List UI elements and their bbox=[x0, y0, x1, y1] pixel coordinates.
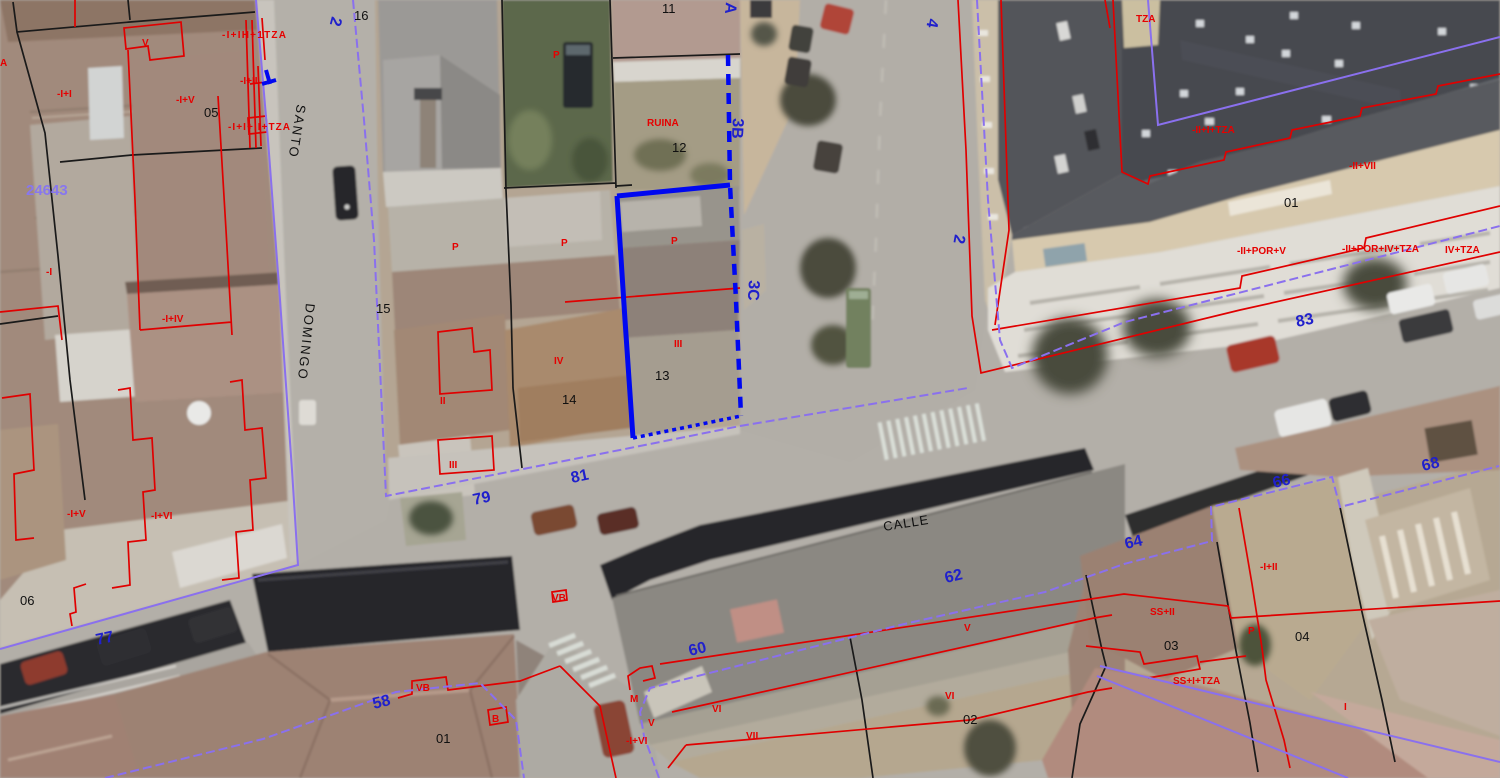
svg-text:A: A bbox=[721, 2, 739, 15]
svg-text:02: 02 bbox=[963, 712, 977, 727]
svg-text:IV+TZA: IV+TZA bbox=[1445, 245, 1480, 256]
svg-text:-I+V: -I+V bbox=[67, 509, 86, 520]
svg-text:III: III bbox=[449, 460, 458, 471]
svg-text:03: 03 bbox=[1164, 638, 1178, 653]
svg-text:M: M bbox=[630, 694, 638, 705]
svg-text:II: II bbox=[440, 396, 446, 407]
svg-text:15: 15 bbox=[376, 301, 390, 316]
svg-text:-I+VI: -I+VI bbox=[626, 736, 648, 747]
svg-text:VB: VB bbox=[416, 683, 430, 694]
svg-text:3C: 3C bbox=[744, 280, 762, 302]
svg-text:-I+IV: -I+IV bbox=[162, 314, 184, 325]
svg-text:P: P bbox=[671, 236, 678, 247]
svg-text:11: 11 bbox=[662, 1, 676, 16]
svg-text:P: P bbox=[452, 242, 459, 253]
svg-text:06: 06 bbox=[20, 593, 34, 608]
svg-text:-I+II: -I+II bbox=[1260, 562, 1278, 573]
svg-text:-II+I+TZA: -II+I+TZA bbox=[1192, 125, 1235, 136]
svg-text:16: 16 bbox=[354, 8, 368, 23]
svg-text:-I+I: -I+I bbox=[57, 89, 72, 100]
svg-text:01: 01 bbox=[436, 731, 450, 746]
svg-text:B: B bbox=[492, 714, 499, 725]
svg-text:04: 04 bbox=[1295, 629, 1309, 644]
svg-text:-I+I+II+TZA: -I+I+II+TZA bbox=[228, 122, 290, 133]
svg-text:V: V bbox=[142, 38, 149, 49]
svg-text:-I: -I bbox=[46, 267, 52, 278]
svg-text:P: P bbox=[561, 238, 568, 249]
svg-text:TZA: TZA bbox=[1136, 14, 1155, 25]
svg-text:83: 83 bbox=[1294, 311, 1315, 331]
svg-text:3B: 3B bbox=[728, 118, 746, 139]
svg-text:-I+VI: -I+VI bbox=[151, 511, 173, 522]
svg-text:VII: VII bbox=[746, 731, 758, 742]
svg-text:V: V bbox=[648, 718, 655, 729]
svg-text:24643: 24643 bbox=[26, 182, 68, 199]
svg-text:-II+VII: -II+VII bbox=[1349, 161, 1376, 172]
svg-text:12: 12 bbox=[672, 140, 686, 155]
svg-text:14: 14 bbox=[562, 392, 576, 407]
svg-text:I: I bbox=[1344, 702, 1347, 713]
svg-text:V: V bbox=[964, 623, 971, 634]
svg-text:-I+II: -I+II bbox=[240, 76, 258, 87]
svg-text:-I+V: -I+V bbox=[176, 95, 195, 106]
svg-text:05: 05 bbox=[204, 105, 218, 120]
svg-text:VI: VI bbox=[712, 704, 722, 715]
svg-text:81: 81 bbox=[569, 467, 590, 487]
svg-text:-I+IH+1TZA: -I+IH+1TZA bbox=[222, 30, 286, 41]
svg-text:79: 79 bbox=[471, 489, 492, 509]
svg-text:13: 13 bbox=[655, 368, 669, 383]
svg-text:IV: IV bbox=[554, 356, 564, 367]
svg-text:RUINA: RUINA bbox=[647, 118, 679, 129]
svg-text:P: P bbox=[553, 50, 560, 61]
svg-text:-II+POR+IV+TZA: -II+POR+IV+TZA bbox=[1342, 244, 1419, 255]
svg-text:VB: VB bbox=[552, 593, 566, 604]
svg-text:A: A bbox=[0, 58, 7, 69]
svg-text:SS+I+TZA: SS+I+TZA bbox=[1173, 676, 1220, 687]
svg-text:-II+POR+V: -II+POR+V bbox=[1237, 246, 1286, 257]
svg-text:77: 77 bbox=[94, 629, 115, 649]
svg-text:VI: VI bbox=[945, 691, 955, 702]
svg-text:SS+II: SS+II bbox=[1150, 607, 1175, 618]
svg-text:01: 01 bbox=[1284, 195, 1298, 210]
svg-text:III: III bbox=[674, 339, 683, 350]
svg-text:P: P bbox=[1248, 626, 1255, 637]
